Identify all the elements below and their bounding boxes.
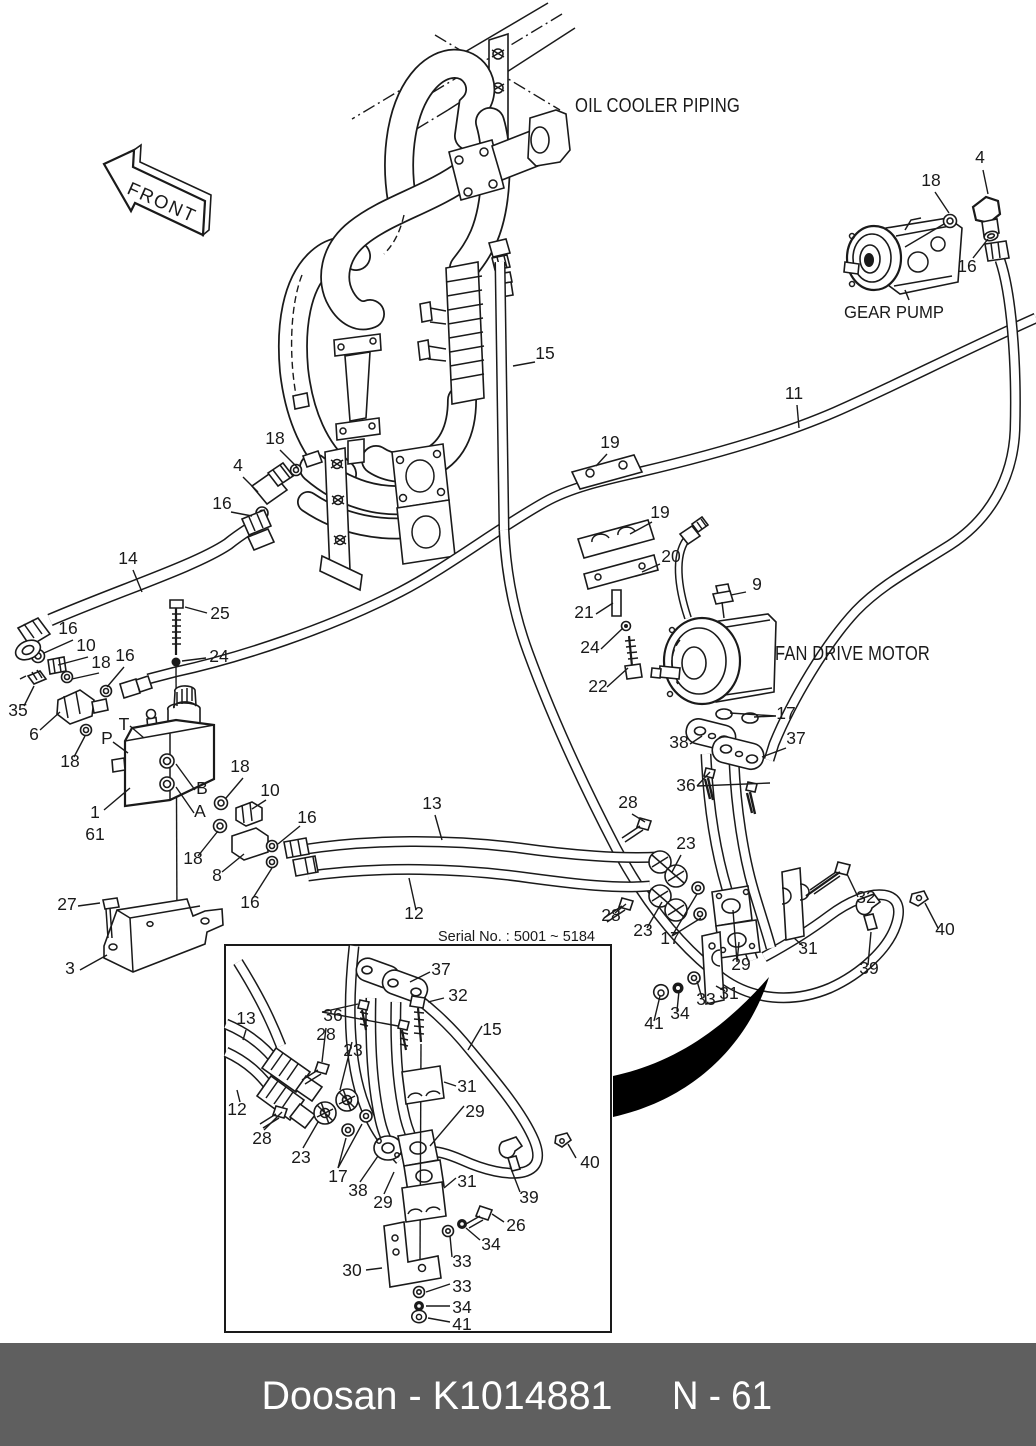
svg-text:10: 10	[260, 780, 280, 800]
svg-text:13: 13	[236, 1008, 255, 1028]
svg-text:19: 19	[600, 432, 619, 452]
svg-text:27: 27	[57, 894, 76, 914]
svg-text:16: 16	[297, 807, 316, 827]
svg-text:FAN DRIVE MOTOR: FAN DRIVE MOTOR	[775, 643, 930, 665]
svg-text:33: 33	[696, 989, 715, 1009]
svg-text:25: 25	[210, 603, 229, 623]
svg-text:15: 15	[482, 1019, 501, 1039]
svg-text:18: 18	[91, 652, 110, 672]
svg-text:23: 23	[343, 1040, 362, 1060]
svg-text:18: 18	[60, 751, 79, 771]
svg-text:12: 12	[227, 1099, 246, 1119]
svg-text:35: 35	[8, 700, 27, 720]
svg-text:16: 16	[212, 493, 231, 513]
svg-text:31: 31	[798, 938, 817, 958]
svg-text:41: 41	[644, 1013, 663, 1033]
svg-text:28: 28	[316, 1024, 335, 1044]
svg-text:29: 29	[465, 1101, 484, 1121]
svg-text:30: 30	[342, 1260, 362, 1280]
svg-text:18: 18	[183, 848, 202, 868]
svg-text:18: 18	[265, 428, 284, 448]
svg-text:34: 34	[481, 1234, 501, 1254]
svg-text:22: 22	[588, 676, 607, 696]
svg-text:16: 16	[957, 256, 976, 276]
svg-text:31: 31	[719, 983, 738, 1003]
svg-text:OIL COOLER PIPING: OIL COOLER PIPING	[575, 95, 740, 117]
svg-text:8: 8	[212, 865, 222, 885]
svg-text:21: 21	[574, 602, 593, 622]
svg-text:4: 4	[975, 147, 985, 167]
svg-text:Serial No. : 5001 ~ 5184: Serial No. : 5001 ~ 5184	[438, 929, 595, 945]
svg-text:9: 9	[752, 574, 762, 594]
svg-text:34: 34	[670, 1003, 690, 1023]
svg-text:37: 37	[431, 959, 450, 979]
svg-text:N - 61: N - 61	[672, 1374, 772, 1418]
svg-text:23: 23	[676, 833, 695, 853]
svg-text:33: 33	[452, 1276, 471, 1296]
svg-text:28: 28	[601, 905, 620, 925]
svg-text:17: 17	[328, 1166, 347, 1186]
svg-text:23: 23	[633, 920, 652, 940]
svg-text:T: T	[119, 714, 130, 734]
svg-text:24: 24	[209, 646, 229, 666]
svg-text:14: 14	[118, 548, 138, 568]
svg-text:18: 18	[921, 170, 940, 190]
svg-text:16: 16	[58, 618, 77, 638]
svg-text:32: 32	[448, 985, 467, 1005]
svg-text:P: P	[101, 728, 113, 748]
svg-text:31: 31	[457, 1171, 476, 1191]
svg-text:16: 16	[115, 645, 134, 665]
svg-text:36: 36	[323, 1005, 342, 1025]
svg-text:6: 6	[29, 724, 39, 744]
svg-text:20: 20	[661, 546, 681, 566]
svg-text:4: 4	[233, 455, 243, 475]
svg-text:31: 31	[457, 1076, 476, 1096]
svg-text:GEAR PUMP: GEAR PUMP	[844, 302, 944, 322]
svg-text:36: 36	[676, 775, 695, 795]
svg-text:40: 40	[580, 1152, 600, 1172]
svg-text:37: 37	[786, 728, 805, 748]
svg-text:39: 39	[519, 1187, 538, 1207]
svg-text:38: 38	[348, 1180, 367, 1200]
svg-text:12: 12	[404, 903, 423, 923]
svg-text:Doosan - K1014881: Doosan - K1014881	[262, 1374, 613, 1418]
svg-text:26: 26	[506, 1215, 525, 1235]
svg-text:A: A	[194, 801, 206, 821]
svg-text:28: 28	[618, 792, 637, 812]
svg-text:17: 17	[660, 928, 679, 948]
svg-text:19: 19	[650, 502, 669, 522]
svg-text:61: 61	[85, 824, 104, 844]
svg-text:29: 29	[373, 1192, 392, 1212]
svg-text:1: 1	[90, 802, 100, 822]
svg-text:28: 28	[252, 1128, 271, 1148]
svg-text:40: 40	[935, 919, 955, 939]
svg-text:13: 13	[422, 793, 441, 813]
svg-text:32: 32	[856, 887, 875, 907]
svg-text:24: 24	[580, 637, 600, 657]
svg-text:29: 29	[731, 954, 750, 974]
svg-text:15: 15	[535, 343, 554, 363]
svg-text:39: 39	[859, 958, 878, 978]
svg-text:3: 3	[65, 958, 75, 978]
svg-text:17: 17	[776, 703, 795, 723]
svg-text:18: 18	[230, 756, 249, 776]
svg-text:33: 33	[452, 1251, 471, 1271]
svg-text:B: B	[196, 778, 208, 798]
svg-text:38: 38	[669, 732, 688, 752]
svg-text:23: 23	[291, 1147, 310, 1167]
svg-text:41: 41	[452, 1314, 471, 1334]
svg-text:11: 11	[785, 383, 803, 403]
svg-text:16: 16	[240, 892, 259, 912]
